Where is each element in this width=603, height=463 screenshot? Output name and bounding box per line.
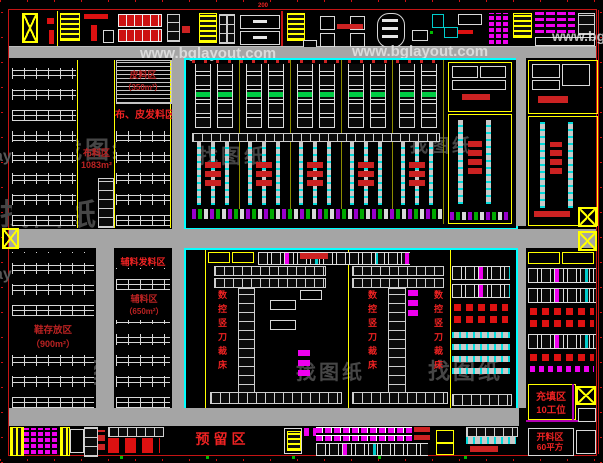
zone-label-cnc-cutter: 数控竖刀裁床 — [216, 290, 229, 374]
workstation-dots-row — [452, 356, 510, 362]
shelf-column — [227, 14, 235, 44]
dimension-ticks-right — [600, 0, 602, 463]
shelf-column — [167, 14, 180, 42]
shaft-xbox-right — [578, 231, 597, 251]
corridor-vertical-left — [172, 248, 184, 408]
wall — [77, 60, 78, 228]
workstation-row — [528, 334, 596, 349]
zone-label-leather: 皮料区 — [116, 68, 170, 81]
corridor-upper — [9, 47, 596, 58]
locker-row — [118, 14, 162, 27]
line-labels-row — [192, 60, 438, 63]
label-box — [436, 430, 454, 443]
red-annotation — [534, 211, 570, 217]
equipment-red — [49, 30, 54, 44]
line-label-red — [409, 160, 425, 186]
sewing-line — [350, 142, 354, 205]
cutting-table — [532, 64, 560, 78]
machine-magenta-stack — [298, 350, 310, 376]
label-box — [528, 252, 560, 264]
workstation-dots-row — [466, 437, 516, 444]
zone-label-trim: 辅料区 — [120, 292, 168, 305]
cutting-table — [452, 66, 478, 78]
sewing-line — [197, 142, 201, 205]
corridor-main — [9, 229, 596, 248]
line-label-red — [205, 160, 221, 186]
staircase — [287, 431, 301, 451]
red-annotation — [337, 24, 363, 29]
bay-divider — [450, 250, 451, 408]
red-machine-row — [530, 308, 594, 315]
bay-divider — [348, 250, 349, 408]
red-annotation — [414, 435, 430, 440]
line-label-red — [358, 160, 374, 186]
red-annotation — [300, 253, 328, 259]
machine — [578, 408, 596, 422]
rack-block-storage — [12, 252, 94, 316]
equipment-red — [47, 18, 54, 24]
magenta-machine-row — [304, 428, 316, 436]
rack-block-trim — [116, 268, 170, 290]
label-box — [562, 252, 594, 264]
red-annotation — [98, 430, 105, 450]
rack-block-storage — [12, 352, 94, 408]
seat-grid — [489, 13, 509, 44]
corridor-lower — [9, 408, 519, 426]
zone-label-trim-area: （650m²） — [120, 306, 168, 317]
rack-block-trim — [116, 320, 170, 408]
aisle-rack — [98, 178, 114, 228]
workbench-row — [352, 278, 444, 288]
desk — [412, 30, 428, 41]
machine-column — [217, 64, 233, 128]
sewing-line — [378, 142, 382, 205]
small-room — [70, 429, 84, 453]
red-annotation — [182, 26, 190, 33]
equipment-red — [458, 30, 473, 34]
cnc-cutting-table — [388, 288, 406, 404]
conveyor-line — [572, 384, 574, 422]
workbench-row — [214, 266, 326, 276]
cutting-table — [480, 66, 506, 78]
machine — [300, 290, 322, 300]
equipment-red — [91, 25, 97, 41]
table-bar — [382, 35, 398, 38]
red-machine-row — [530, 354, 594, 361]
wall — [114, 60, 115, 228]
sewing-line — [248, 142, 252, 205]
red-annotation — [414, 427, 430, 432]
sewing-line — [486, 120, 491, 204]
machine — [576, 430, 596, 454]
shelf-column — [219, 14, 227, 44]
zone-label-fabric: 布料区 — [79, 146, 114, 159]
electrical-room-box — [240, 15, 280, 29]
zone-label-cnc-cutter: 数控竖刀裁床 — [432, 290, 445, 374]
zone-label-reserved: 预留区 — [165, 429, 280, 449]
zone-label-trim-issue: 辅料发料区 — [114, 255, 172, 268]
bay-divider — [443, 60, 444, 224]
desk — [103, 30, 114, 43]
workstation-row — [452, 266, 510, 280]
bay-divider — [205, 250, 206, 408]
workbench-row — [214, 278, 326, 288]
sewing-line — [401, 142, 405, 205]
seat-grid — [24, 428, 58, 454]
dimension-label: 200 — [258, 3, 268, 9]
sewing-line — [299, 142, 303, 205]
table-bar — [382, 27, 398, 30]
zone-label-fabric-area: 1083m² — [79, 160, 114, 170]
sewing-line — [327, 142, 331, 205]
line-label-red — [550, 142, 562, 174]
staircase — [10, 427, 24, 456]
cad-floorplan-canvas: 200 找图纸 找图纸 找图纸 找图纸 找图纸 找图纸 找图纸 www.bgla… — [0, 0, 603, 463]
workstation-row — [258, 252, 410, 265]
machine-column — [195, 64, 211, 128]
machine-column — [297, 64, 313, 128]
machine-column — [421, 64, 437, 128]
label-box — [436, 443, 454, 455]
office-desk — [320, 33, 335, 47]
workbench-row — [352, 392, 448, 404]
workstation-dots-row — [452, 344, 510, 350]
machine-cyan — [432, 14, 444, 28]
dimension-line-right — [598, 10, 599, 454]
hanging-conveyor — [316, 435, 412, 441]
cnc-cutting-table — [238, 288, 255, 404]
zone-label-cutting-area: 60平方 — [530, 441, 570, 453]
rack-block-fabric — [12, 62, 76, 226]
corridor-vertical-right — [516, 58, 526, 226]
sewing-line — [276, 142, 280, 205]
workbench-row — [452, 394, 512, 406]
staircase — [60, 427, 70, 456]
corridor-storage-aisle — [96, 248, 114, 408]
line-label-red — [468, 140, 482, 174]
workstation-row — [528, 288, 596, 303]
desk — [458, 14, 482, 25]
dimension-ticks-bottom — [0, 459, 603, 461]
line-label-red — [256, 160, 272, 186]
shaft-xbox-right-lower — [576, 386, 596, 405]
workbench-row — [210, 392, 342, 404]
zone-label-cnc-cutter: 数控竖刀裁床 — [366, 290, 379, 374]
shaft-xbox-left — [2, 228, 19, 249]
machine-column — [399, 64, 415, 128]
material-boxes-row — [450, 212, 508, 220]
label-box — [208, 252, 230, 263]
staircase — [287, 13, 305, 41]
table-bar — [382, 19, 398, 22]
machine-column — [268, 64, 284, 128]
workstation-row — [528, 268, 596, 283]
survey-ticks-green — [120, 456, 480, 459]
sewing-line — [225, 142, 229, 205]
red-annotation — [538, 96, 568, 103]
staircase — [513, 13, 532, 38]
workstation-row — [452, 284, 510, 298]
workbench-row — [192, 133, 440, 142]
workbench-row — [352, 266, 444, 276]
machine — [270, 300, 296, 310]
zone-label-issue-area: 布、皮发料区 — [108, 106, 182, 121]
zone-label-filling: 充填区 — [528, 388, 574, 403]
machine-column — [348, 64, 364, 128]
shaft-xbox-topleft — [22, 13, 38, 43]
cutting-table — [452, 80, 506, 90]
label-box — [232, 252, 254, 263]
locker-row — [118, 29, 162, 42]
machine-cyan — [444, 27, 458, 38]
material-boxes-row — [192, 209, 442, 219]
staircase — [60, 13, 80, 41]
sewing-line — [540, 122, 545, 208]
sewing-line — [458, 120, 463, 204]
zone-label-shoe-storage-area: （900m²） — [16, 337, 90, 350]
hanging-conveyor — [316, 427, 412, 433]
machine-column — [246, 64, 262, 128]
zone-label-filling-stations: 10工位 — [528, 402, 574, 416]
zone-label-shoe-storage: 鞋存放区 — [16, 322, 90, 336]
rack-block-leather — [116, 122, 170, 226]
watermark-site-partial: www.bg — [552, 28, 603, 44]
sewing-line — [568, 122, 573, 208]
line-label-red — [307, 160, 323, 186]
shelf-column — [84, 427, 98, 457]
red-machine-row — [530, 320, 594, 327]
red-annotation — [462, 94, 490, 100]
workbench-row — [108, 427, 164, 437]
sewing-line — [429, 142, 433, 205]
wall — [57, 11, 58, 46]
fire-wall — [281, 11, 283, 46]
machine-column — [370, 64, 386, 128]
red-annotation — [470, 446, 498, 452]
workstation-dots-row — [452, 332, 510, 338]
shaft-xbox-right — [578, 207, 597, 227]
office-desk — [320, 16, 335, 30]
workstation-row — [316, 443, 428, 456]
cutting-table — [532, 80, 560, 90]
electrical-room-box — [240, 31, 280, 45]
cutting-table — [562, 64, 590, 86]
red-machine-row — [454, 304, 508, 311]
zone-label-leather-area: （350m²） — [116, 82, 170, 93]
magenta-machine-row — [530, 366, 594, 372]
green-dot — [430, 31, 433, 34]
corridor-vertical-left — [172, 58, 184, 229]
staircase — [199, 13, 217, 43]
red-machine-row — [454, 316, 508, 323]
equipment-red — [84, 14, 108, 19]
workstation-dots-row — [452, 368, 510, 374]
machine — [270, 320, 296, 330]
dimension-ticks-top — [0, 0, 603, 2]
red-machine-row — [108, 438, 160, 453]
machine-column — [319, 64, 335, 128]
machine-magenta-stack — [408, 290, 418, 316]
workbench-row — [466, 427, 518, 437]
